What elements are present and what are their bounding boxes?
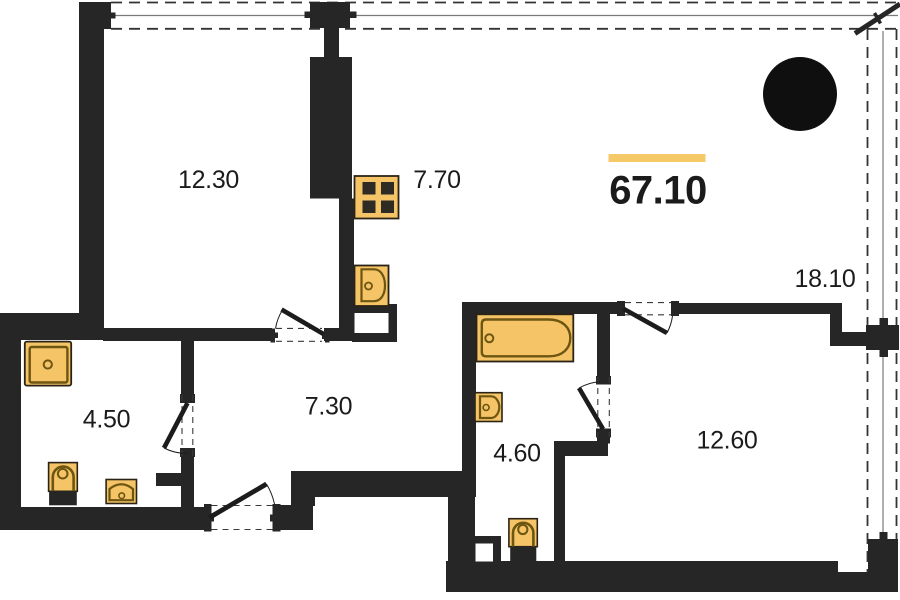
svg-text:67.10: 67.10 <box>609 169 707 213</box>
svg-text:12.60: 12.60 <box>696 427 757 455</box>
svg-text:18.10: 18.10 <box>794 265 855 293</box>
svg-text:12.30: 12.30 <box>178 166 239 194</box>
svg-text:7.70: 7.70 <box>413 166 460 194</box>
svg-text:4.60: 4.60 <box>493 440 540 468</box>
svg-text:7.30: 7.30 <box>305 393 352 421</box>
svg-text:4.50: 4.50 <box>83 406 130 434</box>
